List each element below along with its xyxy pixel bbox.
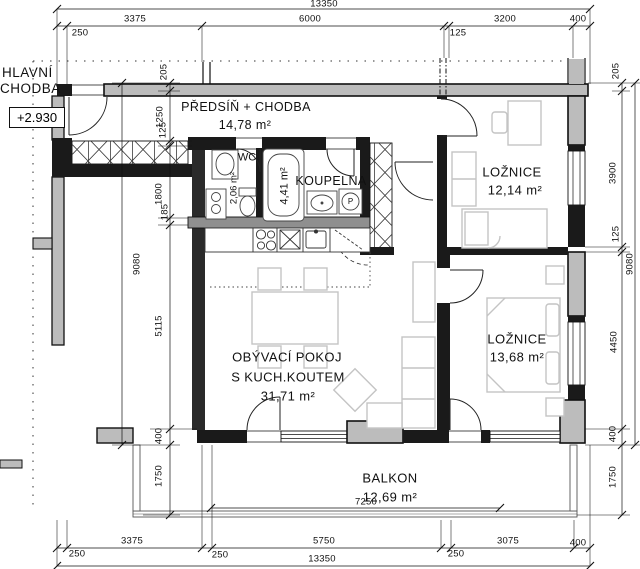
room-area-bedroom2: 13,68 m² [490, 351, 545, 364]
room-label-bedroom2: LOŽNICE [487, 333, 546, 346]
entrance-door [69, 97, 107, 135]
bedroom2-door [450, 270, 483, 303]
kitchen-counter [205, 228, 370, 252]
living-cabinet [413, 262, 435, 322]
kitchen-sink [306, 230, 326, 248]
dim-left-5115: 5115 [154, 315, 164, 336]
bath-sink [307, 191, 337, 214]
bathroom-door [327, 149, 354, 176]
sofa [367, 337, 435, 428]
room-area-bedroom1: 12,14 m² [488, 184, 543, 197]
window-bedroom1 [568, 151, 585, 205]
room-label-hall: PŘEDSÍŇ + CHODBA [181, 101, 311, 114]
room-area-hall: 14,78 m² [219, 119, 272, 132]
room-label-bathroom: KOUPELNA [295, 175, 366, 188]
dim-top-6000: 6000 [299, 14, 321, 24]
dim-right-1750: 1750 [608, 466, 618, 488]
dim-left-205: 205 [159, 64, 169, 80]
dim-left-1750: 1750 [154, 465, 164, 487]
bedroom1-door [441, 99, 477, 136]
window-bedroom2 [568, 322, 585, 385]
dim-left-125: 125 [158, 122, 168, 138]
bedroom1-bed [462, 209, 547, 248]
toilet [239, 188, 256, 216]
room-area-bathroom: 4,41 m² [280, 167, 291, 204]
dim-bottom-250a: 250 [69, 549, 85, 559]
room-area-wc: 2,06 m² [229, 172, 239, 204]
bedroom1-desk [492, 101, 541, 145]
dim-left-185: 185 [160, 204, 170, 220]
dim-bottom-3375: 3375 [121, 536, 143, 546]
room-area-living: 31,71 m² [261, 390, 316, 403]
washing-machine-letter: P [348, 198, 353, 206]
bedroom2-nightstand-top [546, 266, 564, 284]
dim-right-total: 9080 [625, 253, 635, 275]
room-label-balcony: BALKON [362, 472, 417, 485]
dim-top-total: 13350 [310, 0, 337, 9]
dim-bottom-5750: 5750 [313, 536, 335, 546]
floor-plan: HLAVNÍ CHODBA +2.930 PŘEDSÍŇ + CHODBA 14… [0, 0, 640, 569]
bedroom1-wardrobe [452, 152, 476, 206]
dining-table [252, 292, 338, 344]
shaft-fixture [206, 189, 226, 219]
dim-top-400: 400 [570, 14, 586, 24]
dim-right-205: 205 [611, 63, 621, 79]
dim-bottom-3075: 3075 [497, 536, 519, 546]
hallway-door [395, 162, 433, 200]
dim-right-3900: 3900 [608, 162, 618, 184]
window-bedroom2-south [490, 431, 560, 442]
bedroom2-balcony-door [450, 399, 481, 430]
room-label-wc: WC [238, 153, 256, 164]
dim-bottom-total: 13350 [308, 554, 335, 564]
room-label-living-line2: S KUCH.KOUTEM [231, 371, 345, 384]
dim-left-400: 400 [154, 428, 164, 444]
elevation-marker: +2.930 [9, 107, 65, 128]
dim-bottom-250b: 250 [212, 550, 228, 560]
window-living [281, 431, 347, 442]
dim-top-125: 125 [450, 28, 466, 38]
room-label-living-line1: OBÝVACÍ POKOJ [232, 351, 342, 364]
corridor-label-line1: HLAVNÍ [2, 66, 53, 80]
corridor-label-line2: CHODBA [0, 82, 61, 96]
dim-right-400: 400 [608, 426, 618, 442]
dim-left-total: 9080 [132, 253, 142, 275]
room-label-bedroom1: LOŽNICE [482, 166, 541, 179]
bedroom2-nightstand-bottom [546, 398, 564, 416]
dim-top-3200: 3200 [494, 14, 516, 24]
dim-right-125: 125 [611, 226, 621, 242]
dim-bottom-400: 400 [570, 538, 586, 548]
dim-balcony-width: 7250 [355, 497, 377, 507]
dim-left-1800: 1800 [154, 183, 164, 205]
dim-top-250: 250 [72, 28, 88, 38]
oven [280, 230, 300, 249]
elevation-value: +2.930 [17, 110, 57, 125]
dim-bottom-250c: 250 [448, 549, 464, 559]
dim-top-3375: 3375 [124, 14, 146, 24]
dim-right-4450: 4450 [609, 331, 619, 353]
floor-plan-drawing [0, 0, 640, 569]
